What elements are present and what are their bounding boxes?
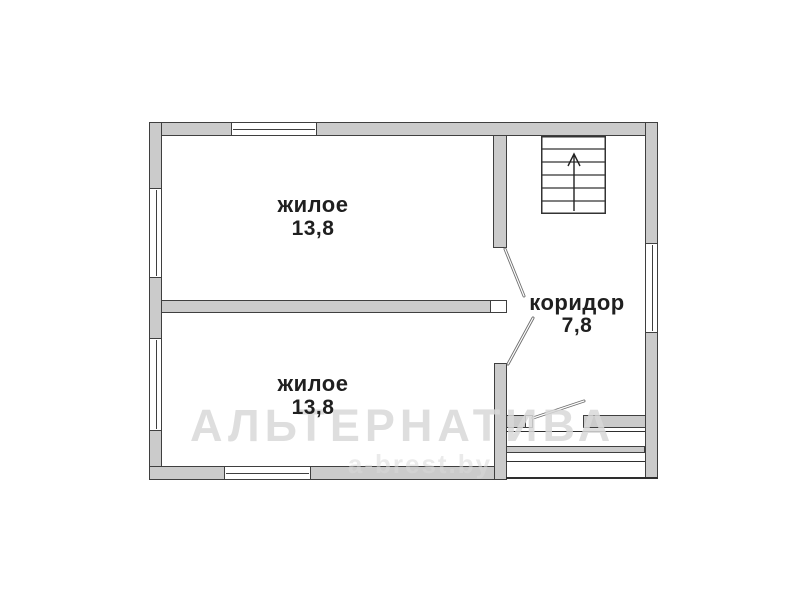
room-name: жилое	[233, 193, 393, 217]
floor-plan-canvas: АЛЬТЕРНАТИВА a-brest.by	[0, 0, 800, 599]
room-name: жилое	[233, 372, 393, 396]
wall-vertical-upper	[493, 135, 507, 248]
window-left-wall-lower	[149, 338, 162, 431]
room-area: 13,8	[233, 396, 393, 420]
room-area: 13,8	[233, 217, 393, 241]
room-label-top: жилое 13,8	[233, 193, 393, 241]
room-label-bottom: жилое 13,8	[233, 372, 393, 420]
door-leaf-top-room	[505, 249, 524, 296]
window-bottom-wall	[224, 466, 311, 480]
wall-middle-end-cap	[490, 300, 507, 313]
window-left-wall-upper	[149, 188, 162, 278]
wall-top	[149, 122, 658, 136]
watermark-site-text: a-brest.by	[300, 449, 540, 480]
room-area: 7,8	[507, 314, 647, 337]
staircase	[541, 136, 606, 214]
wall-middle-horizontal	[161, 300, 491, 313]
room-label-corridor: коридор 7,8	[507, 291, 647, 337]
room-name: коридор	[507, 291, 647, 314]
window-top-wall	[231, 122, 317, 136]
